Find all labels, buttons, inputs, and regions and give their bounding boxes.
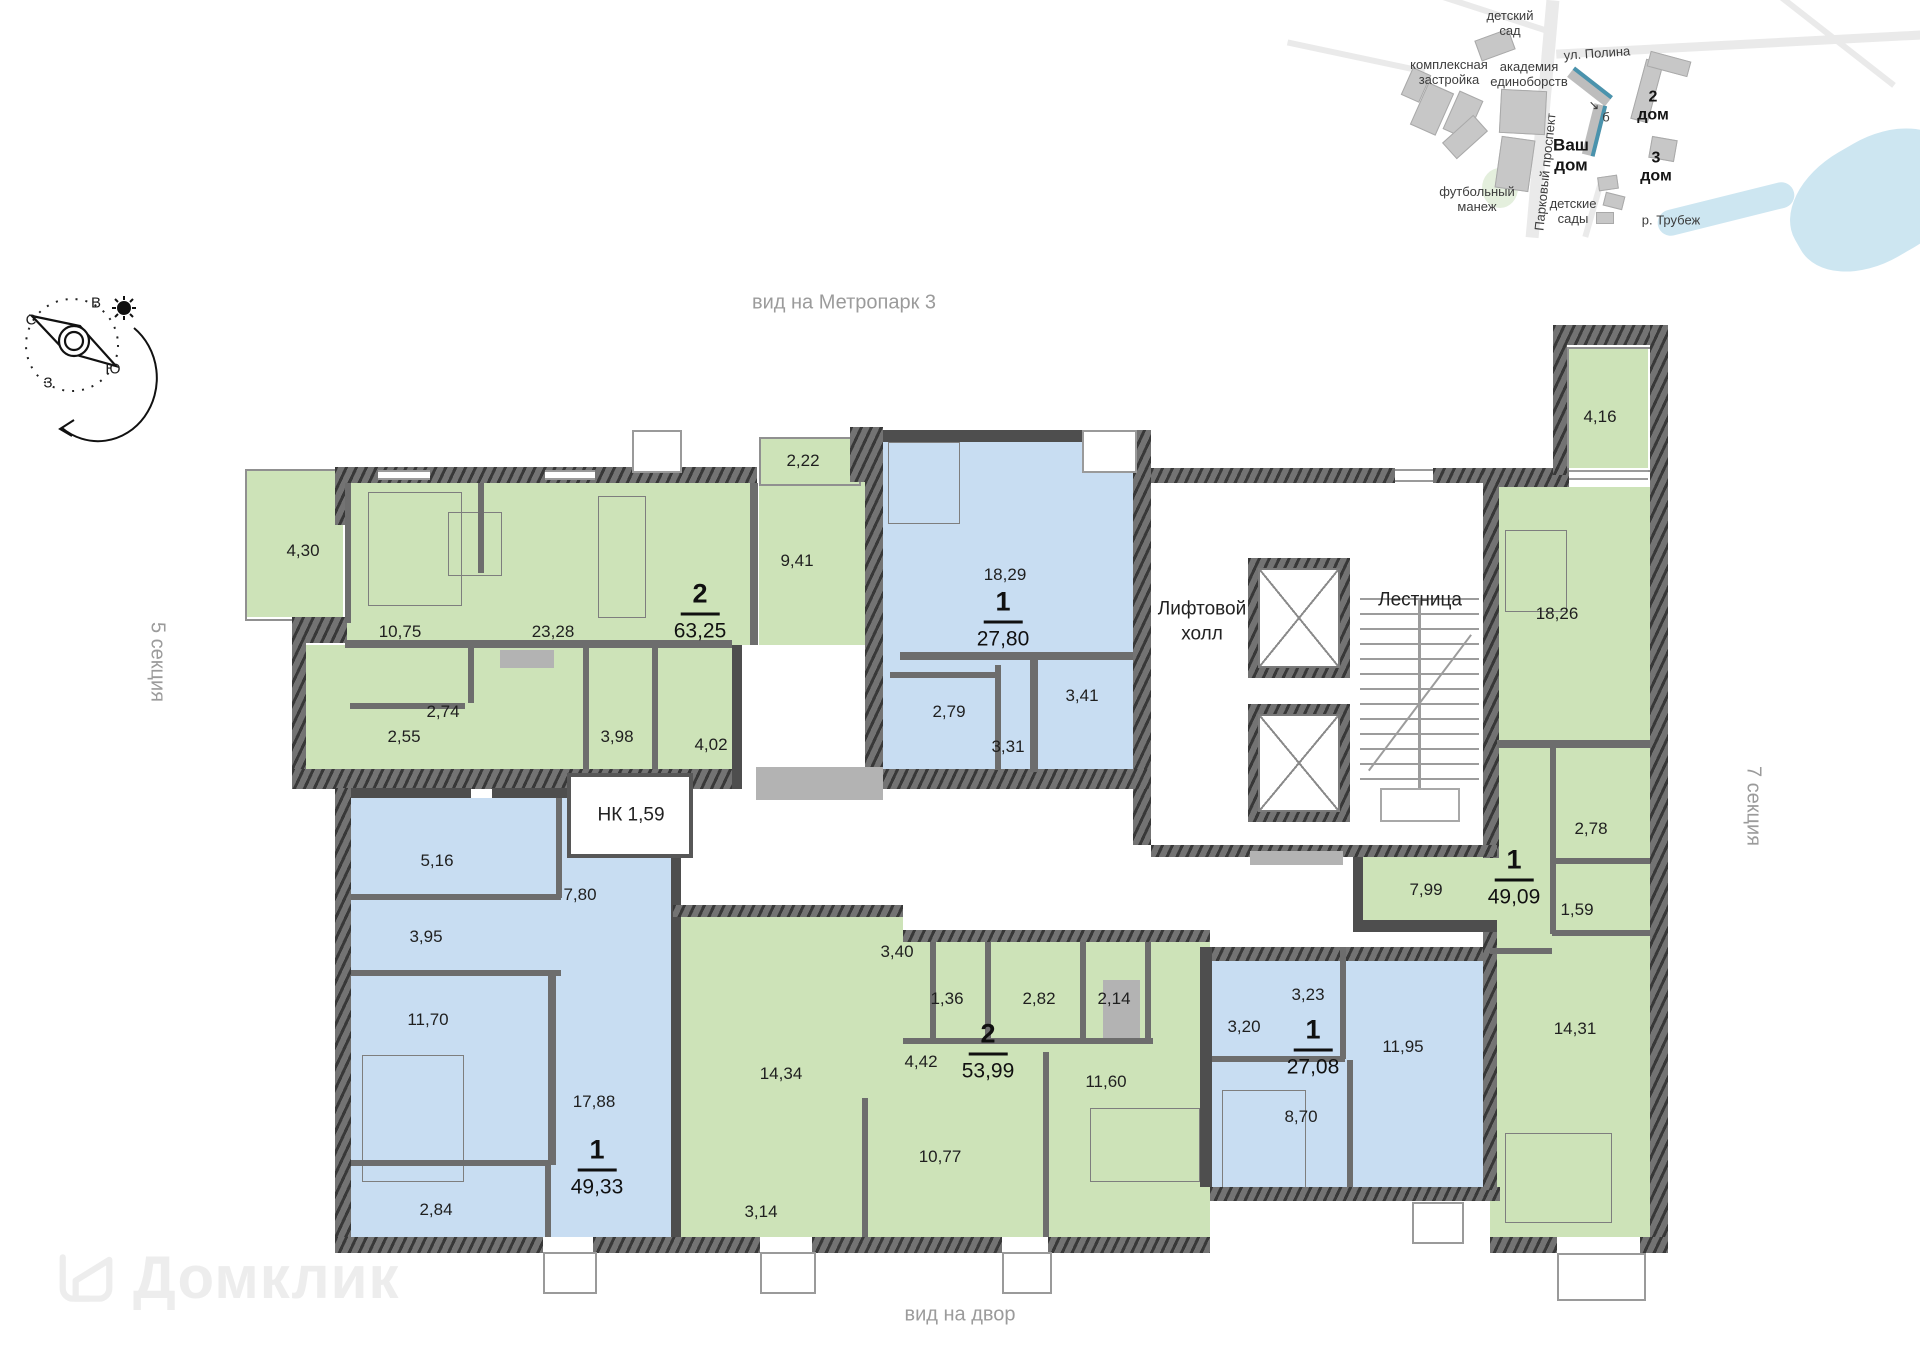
apartment-rooms-count: 1 (577, 1137, 616, 1172)
apartment-2-5399-region[interactable] (903, 942, 1210, 1237)
partition-wall (556, 798, 562, 898)
wall (865, 480, 883, 780)
wall (883, 430, 1082, 442)
map-label: футбольный манеж (1439, 185, 1515, 215)
apartment-total-area: 49,33 (571, 1176, 624, 1200)
partition-wall (1490, 948, 1552, 954)
map-label: 2 дом (1637, 89, 1669, 126)
room-area-label: 2,84 (419, 1200, 452, 1220)
wall (1553, 325, 1663, 345)
shaft-block (756, 767, 883, 800)
map-label: академия единоборств (1490, 60, 1567, 90)
window-bay (632, 430, 682, 473)
apartment-2-6325-label[interactable]: 263,25 (674, 581, 727, 644)
apartment-1-2708-label[interactable]: 127,08 (1287, 1017, 1340, 1080)
wall (1650, 325, 1668, 1253)
room-area-label: 10,77 (919, 1147, 962, 1167)
wall (351, 788, 471, 798)
room-area-label: 3,41 (1065, 686, 1098, 706)
room-area-label: 1,59 (1560, 900, 1593, 920)
furniture-outline (888, 442, 960, 524)
room-area-label: 2,79 (932, 702, 965, 722)
room-area-label: 3,95 (409, 927, 442, 947)
apartment-rooms-count: 1 (1494, 847, 1533, 882)
room-area-label: 3,31 (991, 737, 1024, 757)
wall (903, 930, 1210, 942)
map-building (1603, 192, 1626, 210)
partition-wall (1340, 947, 1346, 1059)
room-area-label: 3,20 (1227, 1017, 1260, 1037)
wall (673, 905, 903, 917)
wall (812, 1237, 1002, 1253)
partition-wall (548, 970, 556, 1165)
partition-wall (583, 648, 589, 769)
room-area-label: 8,70 (1284, 1107, 1317, 1127)
room-area-label: 2,22 (786, 451, 819, 471)
room-area-label: 18,26 (1536, 604, 1579, 624)
wall (1553, 325, 1567, 475)
partition-wall (1552, 930, 1650, 936)
partition-wall (345, 483, 351, 623)
room-area-label: 7,99 (1409, 880, 1442, 900)
apartment-1-4933-label[interactable]: 149,33 (571, 1137, 624, 1200)
window-bay (1002, 1252, 1052, 1294)
room-area-label: 11,70 (407, 1010, 448, 1030)
domclick-watermark: Домклик (55, 1243, 400, 1312)
window (545, 470, 595, 480)
furniture-outline (1505, 1133, 1612, 1223)
map-building (1596, 212, 1614, 224)
map-label: детский сад (1487, 9, 1534, 39)
partition-wall (478, 483, 484, 573)
room-area-label: 3,98 (600, 727, 633, 747)
room-area-label: 9,41 (780, 551, 813, 571)
room-area-label: 18,29 (984, 565, 1027, 585)
wall (732, 645, 742, 789)
wall (335, 788, 351, 1253)
room-area-label: 4,16 (1583, 407, 1616, 427)
partition-wall (1030, 660, 1038, 772)
wall (292, 617, 306, 777)
stair-flight (1360, 598, 1418, 788)
partition-wall (351, 1160, 549, 1166)
elevator-cab-cross (1258, 714, 1340, 812)
watermark-brand: Домклик (133, 1243, 400, 1312)
map-label: Ваш дом (1553, 135, 1589, 174)
compass-letter: В (91, 295, 101, 312)
map-road (1287, 40, 1425, 75)
partition-wall (351, 894, 561, 900)
furniture-outline (1222, 1090, 1306, 1192)
map-label: детские сады (1550, 197, 1597, 227)
apartment-rooms-count: 2 (968, 1021, 1007, 1056)
partition-wall (545, 1160, 551, 1237)
apartment-total-area: 53,99 (962, 1060, 1015, 1084)
wall (1490, 1237, 1557, 1253)
window-bay (543, 1252, 597, 1294)
furniture-outline (1505, 530, 1567, 612)
core-room-label: НК 1,59 (597, 804, 664, 829)
wall (1200, 947, 1212, 1187)
room-area-label: 5,16 (420, 851, 453, 871)
window (1395, 469, 1433, 482)
stair-landing (1380, 788, 1460, 822)
room-area-label: 3,40 (880, 942, 913, 962)
partition-wall (1145, 942, 1151, 1040)
room-area-label: 2,14 (1097, 989, 1130, 1009)
room-area-label: 2,78 (1574, 819, 1607, 839)
window-bay (1412, 1202, 1464, 1244)
partition-wall (468, 648, 474, 703)
partition-wall (351, 970, 561, 976)
wall (335, 1237, 543, 1253)
room-area-label: 11,95 (1382, 1037, 1423, 1057)
room-area-label: 2,82 (1022, 989, 1055, 1009)
room-area-label: 14,34 (760, 1064, 803, 1084)
furniture-outline (1090, 1108, 1200, 1182)
map-river (1655, 179, 1797, 238)
room-area-label: 4,30 (286, 541, 319, 561)
shaft-block (500, 650, 554, 668)
map-label: ул. Полина (1563, 44, 1630, 64)
map-building (1499, 89, 1547, 135)
partition-wall (1552, 858, 1650, 864)
domclick-logo-icon (55, 1247, 117, 1309)
wall (1048, 1237, 1210, 1253)
wall (1353, 857, 1363, 925)
wall (1212, 947, 1490, 961)
room-area-label: 3,23 (1291, 985, 1324, 1005)
view-direction-label: 5 секция (146, 622, 169, 702)
stair-flight (1421, 598, 1479, 788)
apartment-rooms-count: 1 (983, 589, 1022, 624)
apartment-1-2780-label[interactable]: 127,80 (977, 589, 1030, 652)
apartment-1-4909-label[interactable]: 149,09 (1488, 847, 1541, 910)
partition-wall (652, 648, 658, 769)
room-area-label: 7,80 (563, 885, 596, 905)
map-building (1597, 175, 1619, 192)
room-area-label: 11,60 (1085, 1072, 1126, 1092)
window (378, 470, 430, 480)
wall (1210, 1187, 1500, 1201)
room-area-label: 4,42 (904, 1052, 937, 1072)
room-area-label: 2,55 (387, 727, 420, 747)
wall (1483, 468, 1499, 858)
view-direction-label: 7 секция (1742, 766, 1765, 846)
room-area-label: 14,31 (1554, 1019, 1597, 1039)
wall (1640, 1237, 1668, 1253)
partition-wall (1347, 1060, 1353, 1187)
wall (1353, 920, 1497, 932)
stair-divider (1418, 598, 1421, 788)
partition-wall (862, 1098, 868, 1237)
wall (593, 1237, 760, 1253)
window-bay (1557, 1253, 1646, 1301)
map-label: б (1602, 111, 1609, 126)
apartment-total-area: 27,80 (977, 628, 1030, 652)
room-area-label: 23,28 (532, 622, 575, 642)
view-direction-label: вид на Метропарк 3 (752, 292, 936, 315)
compass-letter: Ю (105, 361, 120, 378)
partition-wall (903, 1038, 1153, 1044)
floor-plan-page: Домклик 4,3010,7523,289,412,222,742,553,… (0, 0, 1920, 1350)
room-area-label: 10,75 (379, 622, 422, 642)
map-label: комплексная застройка (1410, 58, 1488, 88)
apartment-total-area: 49,09 (1488, 886, 1541, 910)
partition-wall (1497, 740, 1650, 748)
view-direction-label: вид на двор (904, 1304, 1015, 1327)
map-label: р. Трубеж (1642, 214, 1700, 229)
wall (1151, 468, 1395, 483)
room-area-label: 3,14 (744, 1202, 777, 1222)
apartment-rooms-count: 1 (1293, 1017, 1332, 1052)
wall (1433, 468, 1483, 483)
room-area-label: 17,88 (573, 1092, 616, 1112)
room-area-label: 4,02 (694, 735, 727, 755)
map-label: 3 дом (1640, 150, 1672, 187)
apartment-2-5399-label[interactable]: 253,99 (962, 1021, 1015, 1084)
apartment-total-area: 63,25 (674, 620, 727, 644)
elevator-cab-cross (1258, 568, 1340, 668)
window-bay (760, 1252, 816, 1294)
window-bay (1082, 430, 1137, 473)
map-label: ↘ (1589, 99, 1600, 114)
apartment-rooms-count: 2 (680, 581, 719, 616)
partition-wall (1550, 748, 1556, 934)
room-area-label: 1,36 (930, 989, 963, 1009)
wall (850, 427, 883, 482)
partition-wall (900, 652, 1133, 660)
window (1569, 470, 1648, 480)
furniture-outline (598, 496, 646, 618)
core-room-label: Лестница (1378, 589, 1462, 614)
partition-wall (890, 672, 998, 678)
core-room-label: Лифтовой холл (1158, 597, 1246, 646)
partition-wall (1043, 1052, 1049, 1237)
partition-wall (750, 483, 758, 645)
furniture-outline (448, 512, 502, 576)
shaft-block (1250, 851, 1343, 865)
apartment-total-area: 27,08 (1287, 1056, 1340, 1080)
partition-wall (1080, 942, 1086, 1040)
compass-letter: С (26, 312, 37, 329)
compass-letter: З (43, 375, 52, 392)
room-area-label: 2,74 (426, 702, 459, 722)
wall (1483, 925, 1497, 1190)
